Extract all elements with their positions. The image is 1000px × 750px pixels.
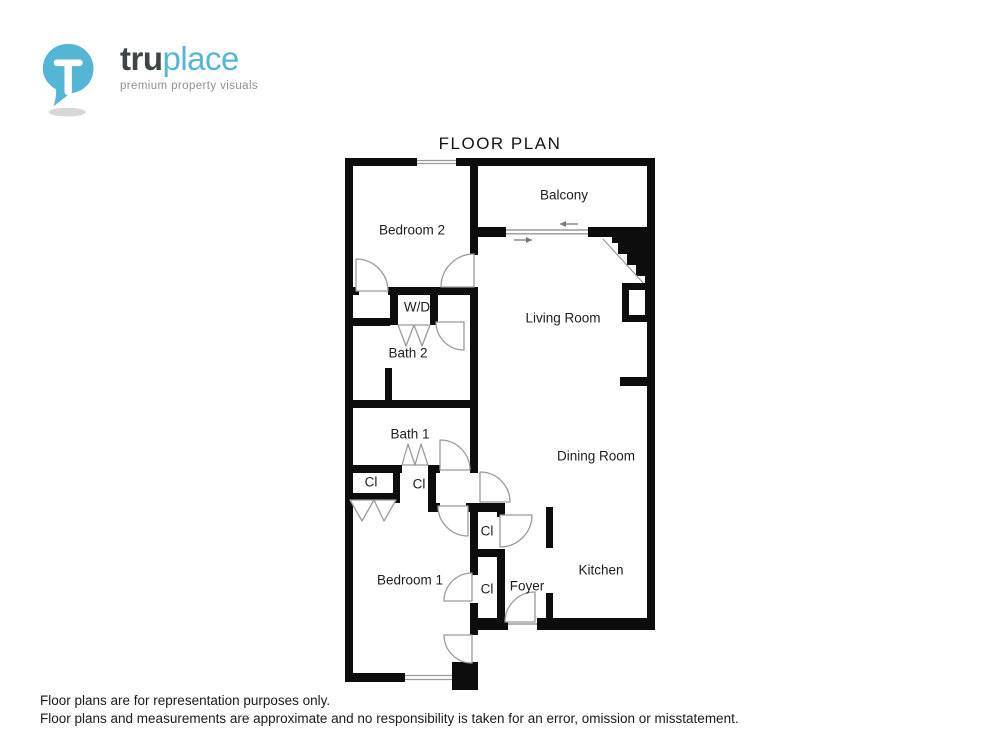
floor-plan-drawing: [0, 0, 1000, 750]
room-label-washer-dryer: W/D: [404, 300, 430, 315]
room-label-bedroom-1: Bedroom 1: [377, 573, 443, 588]
sliding-door: [506, 221, 588, 243]
room-label-closet-bedroom-1: Cl: [481, 582, 494, 597]
room-label-kitchen: Kitchen: [578, 563, 623, 578]
room-label-closet-hall-left: Cl: [365, 475, 378, 490]
room-label-dining-room: Dining Room: [557, 449, 635, 464]
disclaimer-line-2: Floor plans and measurements are approxi…: [40, 710, 739, 728]
door-swings: [350, 254, 535, 663]
room-label-balcony: Balcony: [540, 188, 588, 203]
room-label-closet-hall-right: Cl: [413, 477, 426, 492]
room-label-bedroom-2: Bedroom 2: [379, 223, 445, 238]
room-label-foyer: Foyer: [510, 579, 545, 594]
fireplace: [603, 227, 655, 319]
room-label-closet-foyer: Cl: [481, 524, 494, 539]
room-label-living-room: Living Room: [525, 311, 600, 326]
disclaimer-line-1: Floor plans are for representation purpo…: [40, 692, 739, 710]
room-label-bath-2: Bath 2: [388, 346, 427, 361]
disclaimer: Floor plans are for representation purpo…: [40, 692, 739, 727]
room-label-bath-1: Bath 1: [390, 427, 429, 442]
walls: [345, 158, 655, 690]
page: truplace premium property visuals FLOOR …: [0, 0, 1000, 750]
